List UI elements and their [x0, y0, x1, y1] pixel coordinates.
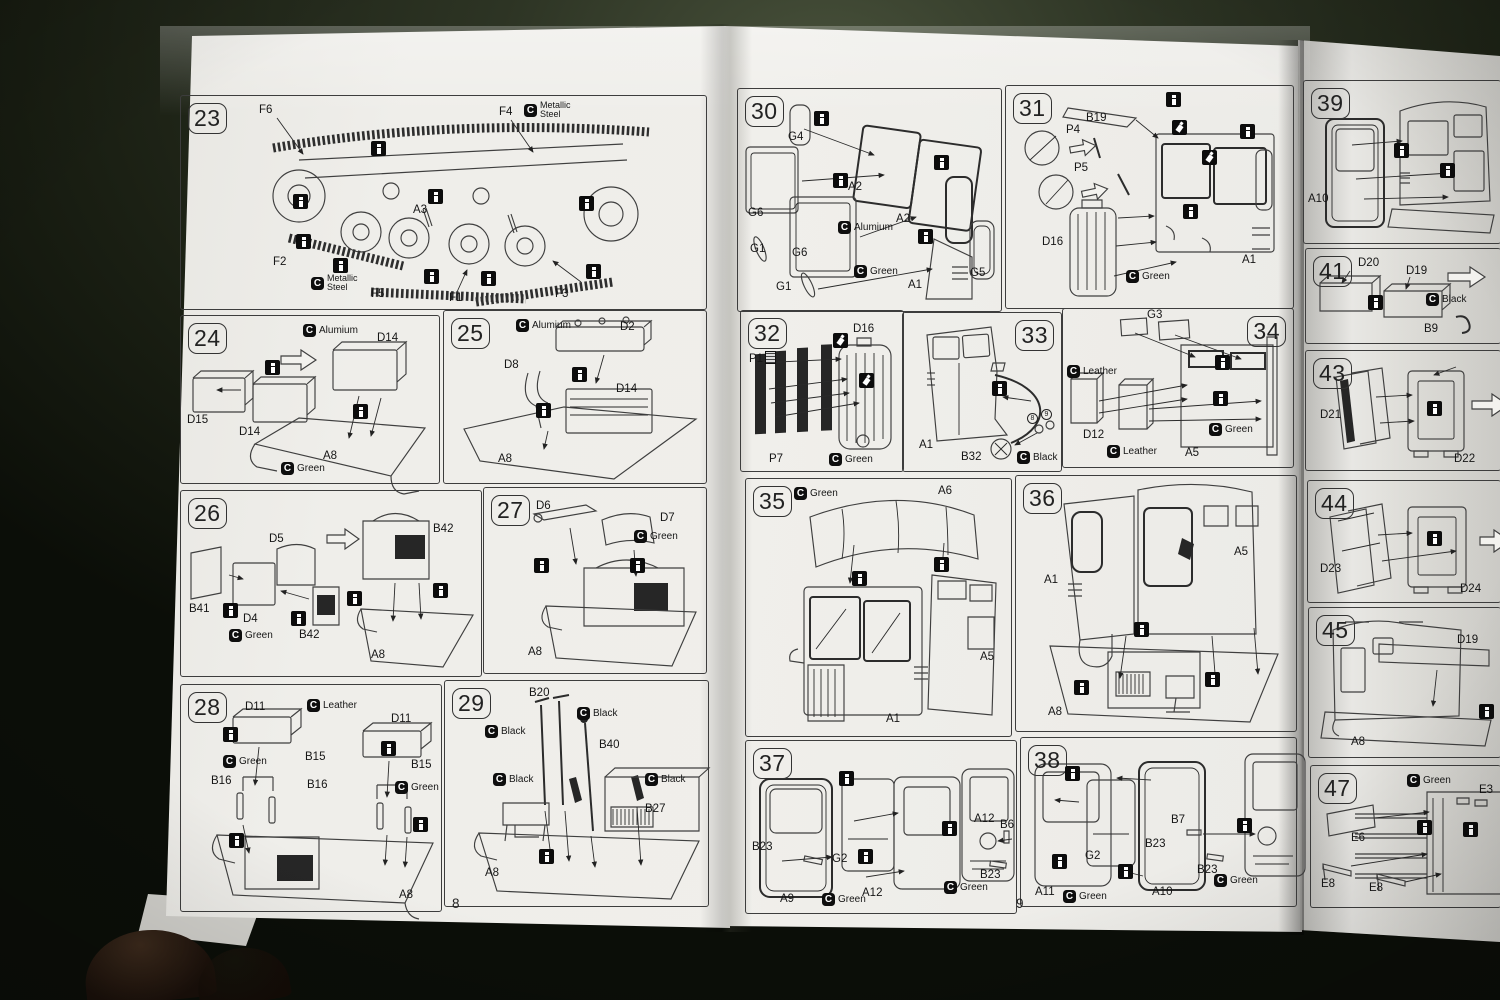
glue-icon: [481, 271, 496, 286]
part-label: B16: [211, 775, 231, 787]
part-label: E6: [1351, 832, 1365, 844]
color-chip-icon: C: [223, 755, 236, 768]
part-label: E8: [1321, 878, 1335, 890]
part-label: A9: [780, 893, 794, 905]
step-panel-31: 31 B19 P4 P5 D16 CGreen A1: [1005, 85, 1294, 309]
part-label: B23: [980, 869, 1000, 881]
color-callout: CBlack: [485, 725, 525, 738]
step-36-diagram: [1016, 476, 1296, 731]
part-label: A3: [413, 204, 427, 216]
glue-bottle-icon: [1202, 150, 1217, 165]
circled-marker: 8: [1027, 413, 1038, 424]
part-label: D4: [243, 613, 258, 625]
glue-icon: [1427, 401, 1442, 416]
glue-icon: [1118, 864, 1133, 879]
part-label: B40: [599, 739, 619, 751]
glue-icon: [413, 817, 428, 832]
glue-icon: [1368, 295, 1383, 310]
part-label: E8: [1369, 882, 1383, 894]
step-number: 27: [491, 495, 530, 526]
step-panel-26: 26 B42 D5 B41 D4 CGreen B42 A8: [180, 490, 482, 677]
step-panel-36: 36 A5 A1 A8: [1015, 475, 1297, 732]
part-label: G1: [750, 243, 765, 255]
part-label: A8: [323, 450, 337, 462]
part-label: B32: [961, 451, 981, 463]
glue-icon: [333, 258, 348, 273]
step-panel-30: 30 G4 G6 A2 G1 G6 CAlumium A2 CGreen G1 …: [737, 88, 1002, 312]
glue-icon: [1237, 818, 1252, 833]
color-chip-icon: C: [645, 773, 658, 786]
color-chip-icon: C: [229, 629, 242, 642]
page-number-right: 9: [1016, 896, 1024, 911]
part-label: A12: [974, 813, 994, 825]
glue-icon: [291, 611, 306, 626]
step-number: 24: [188, 323, 227, 354]
part-label: D23: [1320, 563, 1341, 575]
step-number: 34: [1247, 316, 1286, 347]
part-label: B7: [1171, 814, 1185, 826]
color-chip-icon: C: [1426, 293, 1439, 306]
color-callout: CGreen: [229, 629, 273, 642]
glue-icon: [1240, 124, 1255, 139]
step-panel-27: 27 D6 D7 CGreen A8: [483, 487, 707, 674]
part-label: D11: [391, 713, 411, 725]
glue-icon: [1074, 680, 1089, 695]
part-label: F4: [499, 106, 512, 118]
color-callout: CGreen: [854, 265, 898, 278]
color-chip-icon: C: [1063, 890, 1076, 903]
color-chip-icon: C: [854, 265, 867, 278]
part-label: E3: [1479, 784, 1493, 796]
part-label: D14: [239, 426, 260, 438]
part-label: P4: [1066, 124, 1080, 136]
glue-icon: [572, 367, 587, 382]
part-label: D15: [187, 414, 208, 426]
part-label: A8: [528, 646, 542, 658]
part-label: B15: [411, 759, 431, 771]
glue-bottle-icon: [833, 333, 848, 348]
glue-icon: [223, 603, 238, 618]
color-chip-icon: C: [794, 487, 807, 500]
step-number: 47: [1318, 773, 1357, 804]
part-label: A10: [1308, 193, 1328, 205]
glue-icon: [1479, 704, 1494, 719]
glue-icon: [229, 833, 244, 848]
part-label: P1: [749, 351, 776, 365]
color-chip-icon: C: [944, 881, 957, 894]
step-panel-33: 33 8 9 A1 B32 CBlack: [902, 312, 1062, 472]
part-label: G6: [792, 247, 807, 259]
step-35-diagram: [746, 479, 1011, 736]
color-callout: CLeather: [307, 699, 357, 712]
glue-icon: [1463, 822, 1478, 837]
part-label: B42: [299, 629, 319, 641]
color-callout: CGreen: [944, 881, 988, 894]
glue-icon: [428, 189, 443, 204]
color-chip-icon: C: [311, 277, 324, 290]
color-chip-icon: C: [1107, 445, 1120, 458]
part-label: F2: [273, 256, 286, 268]
glue-icon: [942, 821, 957, 836]
part-label: D24: [1460, 583, 1481, 595]
part-label: A1: [886, 713, 900, 725]
part-label: B9: [1424, 323, 1438, 335]
step-number: 38: [1028, 745, 1067, 776]
color-callout: CBlack: [577, 707, 617, 720]
part-label: B16: [307, 779, 327, 791]
part-label: D14: [616, 383, 637, 395]
glue-icon: [1183, 204, 1198, 219]
color-chip-icon: C: [1067, 365, 1080, 378]
glue-icon: [1213, 391, 1228, 406]
step-panel-35: 35 CGreen A6 A5 A1: [745, 478, 1012, 737]
glue-icon: [536, 403, 551, 418]
color-chip-icon: C: [524, 104, 537, 117]
color-chip-icon: C: [395, 781, 408, 794]
color-chip-icon: C: [1214, 874, 1227, 887]
glue-icon: [839, 771, 854, 786]
color-chip-icon: C: [1209, 423, 1222, 436]
part-label: F3: [555, 288, 568, 300]
color-callout: CGreen: [1407, 774, 1451, 787]
step-number: 44: [1315, 488, 1354, 519]
color-callout: CGreen: [634, 530, 678, 543]
step-panel-43: 43 D21 D22: [1305, 350, 1500, 471]
glue-icon: [1417, 820, 1432, 835]
glue-icon: [1215, 355, 1230, 370]
color-chip-icon: C: [1017, 451, 1030, 464]
part-label: A8: [371, 649, 385, 661]
part-label: D21: [1320, 409, 1341, 421]
part-label: A6: [938, 485, 952, 497]
glue-bottle-icon: [1172, 120, 1187, 135]
part-label: A1: [908, 279, 922, 291]
part-label: D16: [853, 323, 874, 335]
part-label: D16: [1042, 236, 1063, 248]
part-label: G5: [970, 267, 985, 279]
step-panel-34: 34 G3 CLeather D12 CLeather CGreen A5: [1062, 308, 1294, 468]
color-callout: CMetallic Steel: [311, 274, 371, 292]
part-label: A1: [919, 439, 933, 451]
step-number: 45: [1316, 615, 1355, 646]
part-label: B6: [1000, 819, 1014, 831]
glue-icon: [833, 173, 848, 188]
glue-icon: [586, 264, 601, 279]
part-label: A2: [848, 181, 862, 193]
glue-icon: [1052, 854, 1067, 869]
part-label: D2: [620, 321, 635, 333]
part-label: D19: [1457, 634, 1478, 646]
part-label: G4: [788, 131, 803, 143]
part-label: P7: [769, 453, 783, 465]
glue-icon: [371, 141, 386, 156]
part-label: A5: [1185, 447, 1199, 459]
step-number: 28: [188, 692, 227, 723]
step-panel-28: 28 D11 CLeather D11 CGreen B15 B15 B16 B…: [180, 684, 442, 912]
part-label: A8: [399, 889, 413, 901]
color-callout: CAlumium: [838, 221, 893, 234]
glue-icon: [934, 155, 949, 170]
color-callout: CGreen: [223, 755, 267, 768]
step-number: 26: [188, 498, 227, 529]
color-callout: CBlack: [1426, 293, 1466, 306]
glue-icon: [1440, 163, 1455, 178]
part-label: B27: [645, 803, 665, 815]
step-number: 23: [188, 103, 227, 134]
glue-icon: [296, 234, 311, 249]
color-callout: CGreen: [829, 453, 873, 466]
glue-icon: [1065, 766, 1080, 781]
color-chip-icon: C: [822, 893, 835, 906]
step-number: 25: [451, 318, 490, 349]
step-number: 33: [1015, 320, 1054, 351]
color-callout: CBlack: [645, 773, 685, 786]
part-label: A1: [1242, 254, 1256, 266]
glue-icon: [353, 404, 368, 419]
step-number: 35: [753, 486, 792, 517]
part-label: A1: [1044, 574, 1058, 586]
part-label: F1: [449, 292, 462, 304]
glue-icon: [433, 583, 448, 598]
glue-icon: [347, 591, 362, 606]
step-23-diagram: [181, 96, 706, 309]
step-panel-24: 24 CAlumium D14 D15 D14 A8 CGreen: [180, 315, 440, 484]
part-label: G3: [1147, 309, 1162, 321]
part-label: D8: [504, 359, 519, 371]
part-label: G6: [748, 207, 763, 219]
part-label: B19: [1086, 112, 1106, 124]
step-number: 39: [1311, 88, 1350, 119]
step-number: 37: [753, 748, 792, 779]
step-number: 36: [1023, 483, 1062, 514]
color-chip-icon: C: [281, 462, 294, 475]
part-label: A8: [498, 453, 512, 465]
glue-icon: [293, 194, 308, 209]
circled-marker: 9: [1041, 409, 1052, 420]
color-callout: CBlack: [1017, 451, 1057, 464]
step-number: 31: [1013, 93, 1052, 124]
part-label: F6: [259, 104, 272, 116]
part-label: D6: [536, 500, 551, 512]
color-callout: CGreen: [395, 781, 439, 794]
color-callout: CGreen: [794, 487, 838, 500]
part-label: D14: [377, 332, 398, 344]
color-chip-icon: C: [829, 453, 842, 466]
color-callout: CAlumium: [516, 319, 571, 332]
glue-icon: [858, 849, 873, 864]
page-number-left: 8: [452, 896, 460, 911]
part-label: B20: [529, 687, 549, 699]
part-label: B42: [433, 523, 453, 535]
color-chip-icon: C: [577, 707, 590, 720]
part-label: A2: [896, 213, 910, 225]
part-label: B23: [1145, 838, 1165, 850]
color-chip-icon: C: [303, 324, 316, 337]
step-panel-45: 45 D19 A8: [1308, 607, 1500, 758]
glue-icon: [918, 229, 933, 244]
part-label: G2: [832, 853, 847, 865]
step-panel-47: 47 CGreen E3 E6 E8 E8: [1310, 765, 1500, 908]
part-label: D11: [245, 701, 265, 713]
part-label: B15: [305, 751, 325, 763]
glue-icon: [579, 196, 594, 211]
part-label: A5: [1234, 546, 1248, 558]
color-callout: CGreen: [1126, 270, 1170, 283]
part-label: D20: [1358, 257, 1379, 269]
glue-icon: [992, 381, 1007, 396]
step-number: 32: [748, 318, 787, 349]
glue-icon: [534, 558, 549, 573]
part-label: D5: [269, 533, 284, 545]
step-panel-29: 29 B20 CBlack CBlack B40 CBlack CBlack B…: [444, 680, 709, 907]
glue-bottle-icon: [859, 373, 874, 388]
part-label: A10: [1152, 886, 1172, 898]
color-callout: CGreen: [281, 462, 325, 475]
part-label: A8: [1351, 736, 1365, 748]
glue-icon: [630, 558, 645, 573]
step-number: 43: [1313, 358, 1352, 389]
part-label: D19: [1406, 265, 1427, 277]
glue-icon: [814, 111, 829, 126]
glue-icon: [852, 571, 867, 586]
glue-icon: [1166, 92, 1181, 107]
part-label: A11: [1035, 886, 1055, 898]
glue-icon: [1205, 672, 1220, 687]
step-number: 30: [745, 96, 784, 127]
step-number: 41: [1313, 256, 1352, 287]
step-panel-32: 32 D16 P1 P7 CGreen: [740, 310, 904, 472]
color-callout: CLeather: [1067, 365, 1117, 378]
step-panel-39: 39 A10: [1303, 80, 1500, 244]
photo-of-instruction-sheet: 23 F6 F4 CMetallic Steel A3 F2 CMetallic…: [0, 0, 1500, 1000]
part-label: P5: [1074, 162, 1088, 174]
part-label: G2: [1085, 850, 1100, 862]
part-label: A8: [1048, 706, 1062, 718]
part-label: D22: [1454, 453, 1475, 465]
color-callout: CGreen: [1214, 874, 1258, 887]
color-chip-icon: C: [1126, 270, 1139, 283]
finger: [192, 940, 292, 1000]
part-label: D12: [1083, 429, 1104, 441]
step-number: 29: [452, 688, 491, 719]
color-chip-icon: C: [485, 725, 498, 738]
part-label: A8: [485, 867, 499, 879]
part-label: B41: [189, 603, 209, 615]
color-chip-icon: C: [1407, 774, 1420, 787]
glue-icon: [1134, 622, 1149, 637]
part-thumbnail-icon: [765, 351, 776, 364]
color-callout: CMetallic Steel: [524, 101, 584, 119]
part-label: B23: [752, 841, 772, 853]
step-panel-25: 25 CAlumium D2 D8 D14 A8: [443, 310, 707, 484]
step-panel-44: 44 D23 D24: [1307, 480, 1500, 603]
glue-icon: [424, 269, 439, 284]
color-callout: CGreen: [822, 893, 866, 906]
color-chip-icon: C: [516, 319, 529, 332]
color-callout: CBlack: [493, 773, 533, 786]
part-label: A12: [862, 887, 882, 899]
color-chip-icon: C: [634, 530, 647, 543]
part-label: F5: [371, 288, 384, 300]
glue-icon: [1394, 143, 1409, 158]
color-chip-icon: C: [307, 699, 320, 712]
part-label: A5: [980, 651, 994, 663]
step-panel-23: 23 F6 F4 CMetallic Steel A3 F2 CMetallic…: [180, 95, 707, 310]
step-panel-41: 41 D20 D19 CBlack B9: [1305, 248, 1500, 344]
color-chip-icon: C: [838, 221, 851, 234]
glue-icon: [223, 727, 238, 742]
color-callout: CGreen: [1209, 423, 1253, 436]
color-callout: CLeather: [1107, 445, 1157, 458]
color-chip-icon: C: [493, 773, 506, 786]
step-panel-38: 38 G2 B23 A11 CGreen A10 B7 B23 CGreen: [1020, 737, 1297, 907]
glue-icon: [934, 557, 949, 572]
part-label: G1: [776, 281, 791, 293]
part-label: D7: [660, 512, 675, 524]
color-callout: CAlumium: [303, 324, 358, 337]
glue-icon: [381, 741, 396, 756]
glue-icon: [1427, 531, 1442, 546]
color-callout: CGreen: [1063, 890, 1107, 903]
step-panel-37: 37 B23 G2 A9 CGreen A12 A12 B6 B23 CGree…: [745, 740, 1017, 914]
glue-icon: [539, 849, 554, 864]
glue-icon: [265, 360, 280, 375]
